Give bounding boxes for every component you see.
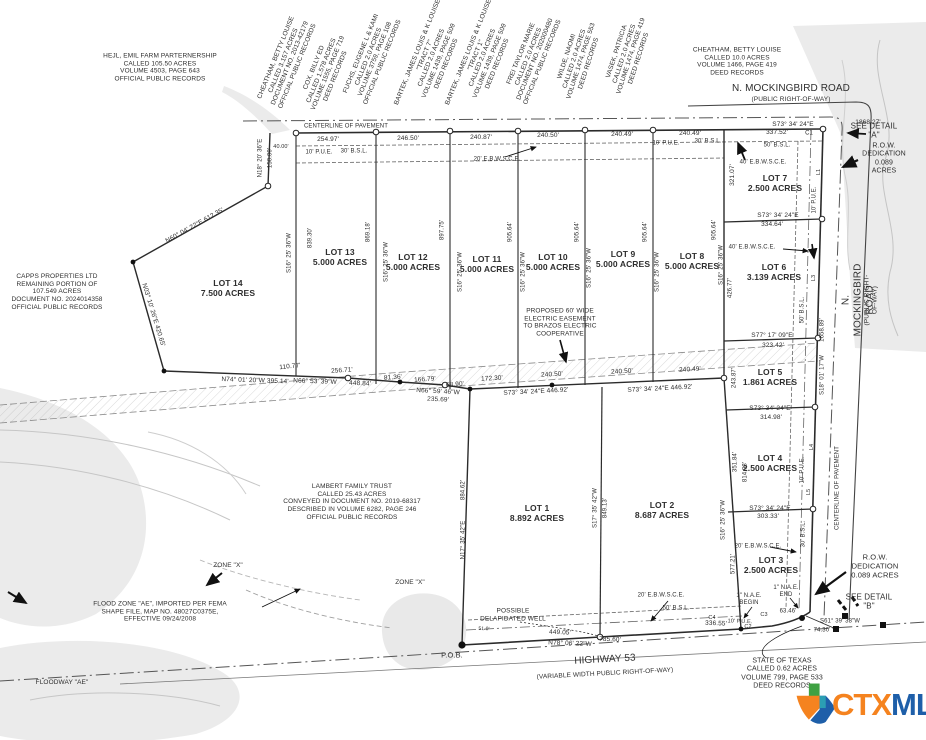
ctxmls-logo: CTXMLS <box>792 682 926 728</box>
logo-ctx-text: CTX <box>832 687 891 723</box>
plat-linework <box>0 0 926 740</box>
plat-canvas: HEJL, EMIL FARM PARTERNERSHIP CALLED 105… <box>0 0 926 740</box>
logo-mls-text: MLS <box>891 687 926 723</box>
